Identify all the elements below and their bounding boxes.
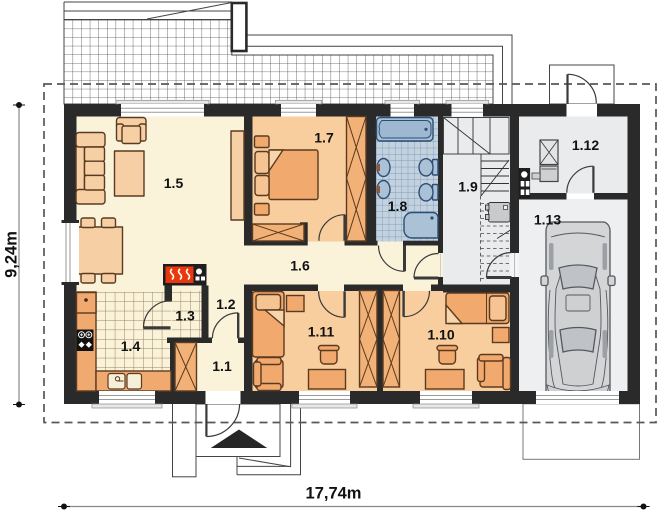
svg-text:1.1: 1.1 — [212, 358, 232, 374]
svg-text:1.3: 1.3 — [175, 307, 195, 323]
svg-text:1.11: 1.11 — [308, 324, 335, 340]
svg-text:1.6: 1.6 — [290, 258, 310, 274]
svg-text:1.8: 1.8 — [388, 198, 408, 214]
svg-text:1.12: 1.12 — [572, 137, 599, 153]
svg-text:17,74m: 17,74m — [306, 485, 362, 503]
svg-text:1.10: 1.10 — [427, 327, 454, 343]
svg-text:1.7: 1.7 — [314, 130, 334, 146]
svg-text:1.2: 1.2 — [216, 296, 236, 312]
svg-text:1.9: 1.9 — [458, 178, 478, 194]
svg-text:9,24m: 9,24m — [3, 231, 21, 278]
svg-text:1.5: 1.5 — [164, 175, 184, 191]
svg-text:1.4: 1.4 — [121, 338, 141, 354]
svg-text:1.13: 1.13 — [534, 212, 561, 228]
